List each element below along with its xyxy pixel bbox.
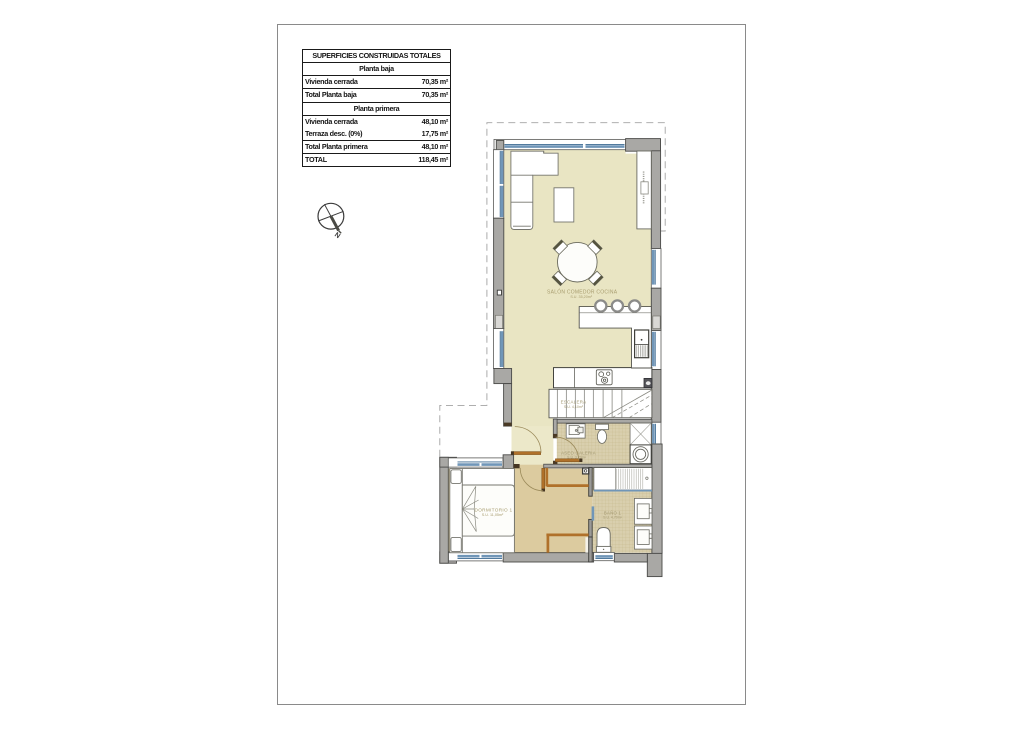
svg-text:ESCALERA: ESCALERA (561, 399, 587, 404)
svg-text:S.U. 4,70m²: S.U. 4,70m² (603, 516, 623, 520)
svg-text:DORMITORIO 1: DORMITORIO 1 (475, 507, 513, 512)
svg-text:BAÑO 1: BAÑO 1 (604, 510, 622, 515)
svg-text:S.U. 11,05m²: S.U. 11,05m² (482, 513, 504, 517)
svg-text:S.U. 35,20m²: S.U. 35,20m² (570, 295, 592, 299)
svg-text:S.U. 4,10m²: S.U. 4,10m² (564, 405, 584, 409)
svg-text:N: N (333, 232, 341, 241)
